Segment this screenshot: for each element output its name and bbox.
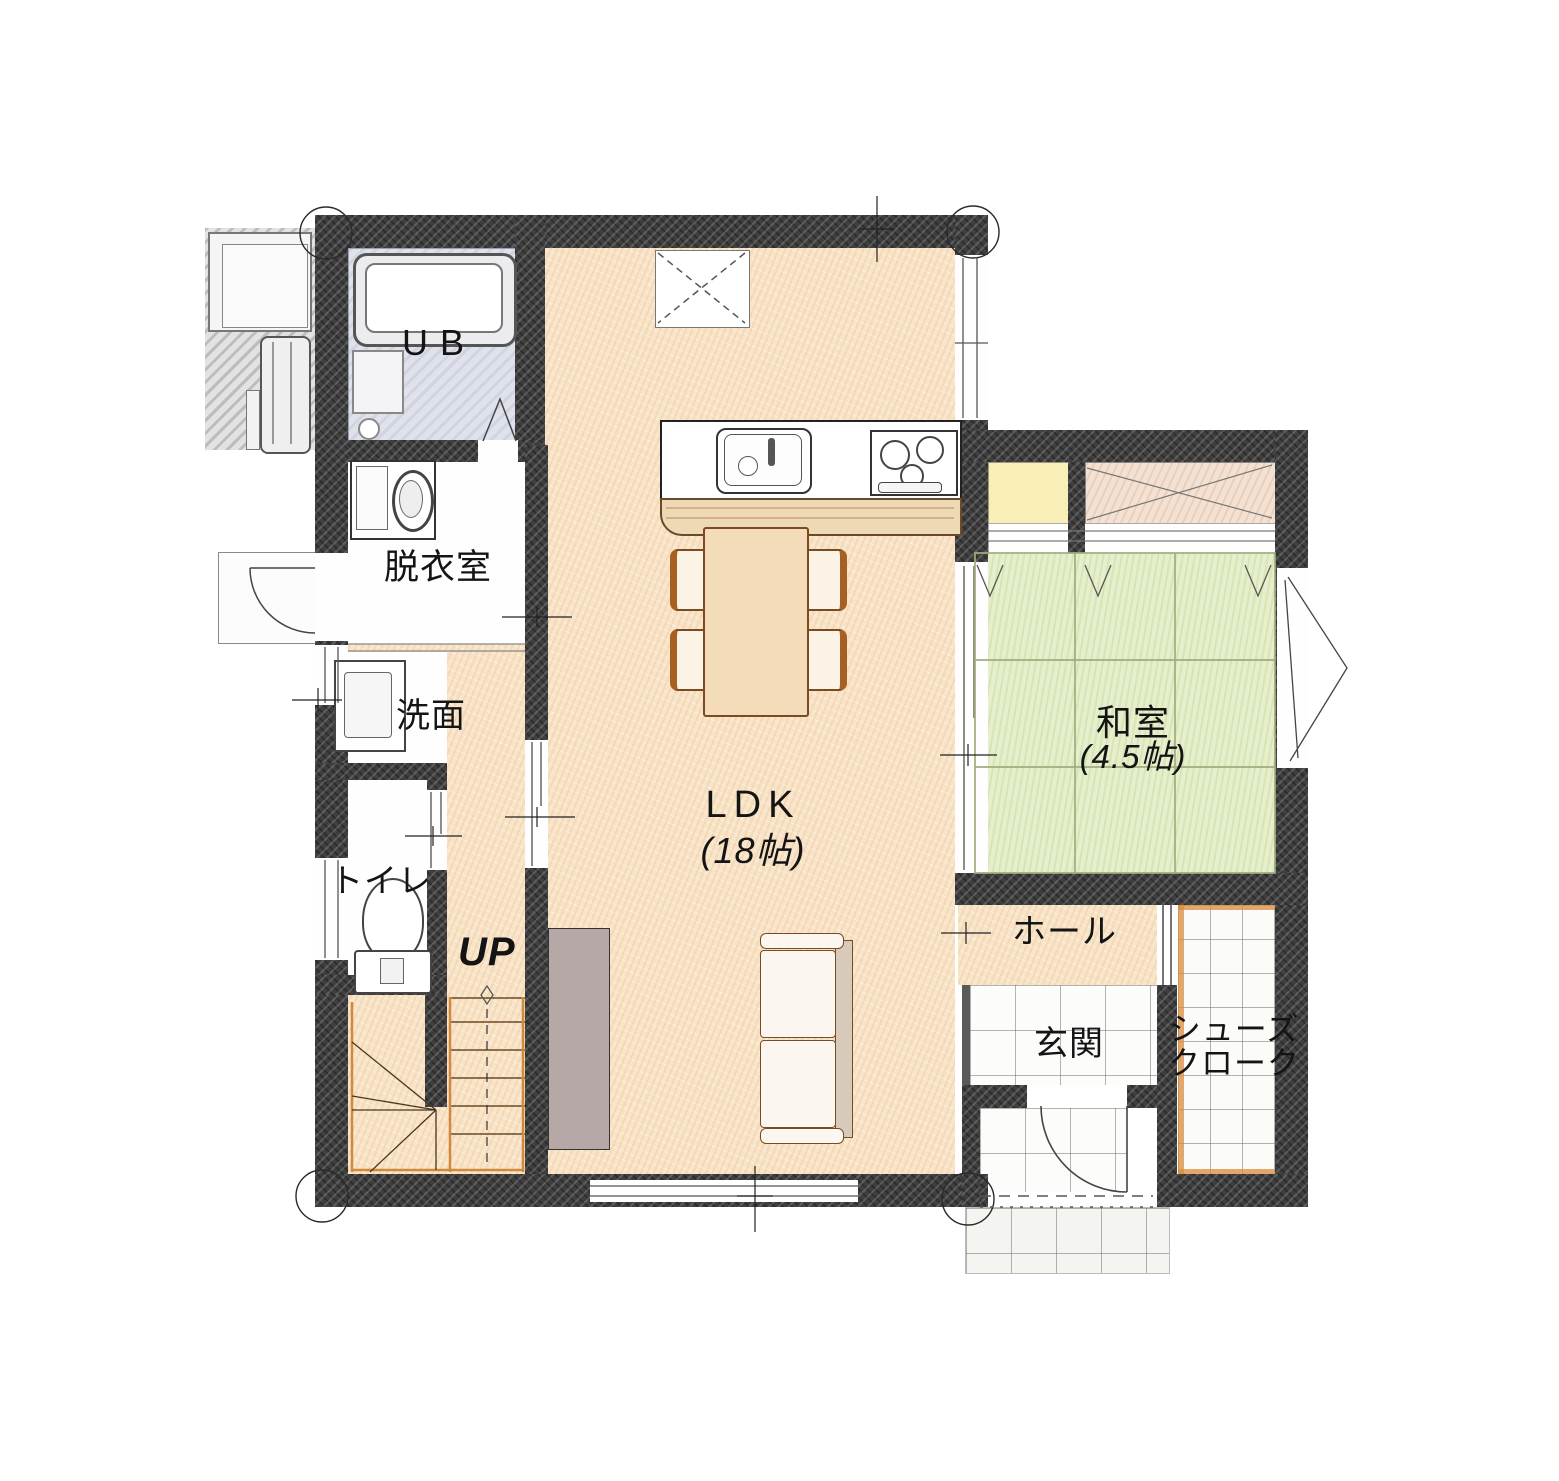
sofa-armrest [760,933,844,949]
washstand-bowl [344,672,392,738]
corridor-sliding-door [525,740,548,868]
wall-top-main [315,215,988,248]
room-label-washitsu-size: (4.5帖) [1058,730,1208,778]
washitsu-east-door-opening [1277,568,1308,768]
wall-wing-top [955,430,1308,462]
floor-plan-canvas: UB 脱衣室 洗面 トイレ UP LDK (18帖) 和室 (4.5帖) ホール… [0,0,1559,1481]
back-door-opening [315,553,348,641]
water-heater [260,336,311,454]
tokonoma-closet [988,462,1070,525]
room-label-ub: UB [402,322,476,364]
dining-table [703,527,809,717]
closet-sliding-track [988,523,1277,555]
porch-step-dashes [980,1196,1153,1207]
wall-closet-divider [1068,462,1085,553]
wall-vestibule-west [962,1085,980,1207]
wall-washroom-bottom [315,763,447,780]
chair [804,629,847,691]
water-heater-side-unit [246,390,260,450]
ldk-south-window [590,1180,858,1202]
room-label-toilet: トイレ [330,854,432,902]
shoe-closet-trim-top [1178,905,1275,910]
room-label-hall: ホール [1012,904,1117,953]
entrance-vestibule-tile [980,1108,1127,1192]
sink-faucet [768,438,775,466]
chair [804,549,847,611]
shower-drain [358,418,380,440]
sofa-cushion [760,950,836,1038]
washing-machine-lid [356,466,388,530]
wall-ldk-entrance-thin [962,985,970,1087]
ldk-east-window [955,255,988,420]
washing-machine-drum-inner [399,480,423,518]
washitsu-west-sliding-door [955,562,988,873]
room-label-shoecloset-2: クローク [1164,1038,1304,1084]
water-heater-line [272,342,274,444]
stove-grill [878,482,942,493]
room-label-up: UP [458,930,516,975]
room-label-washroom: 洗面 [396,688,466,737]
room-label-ldk-size: (18帖) [678,822,828,874]
wall-stair-spine [425,995,447,1107]
outdoor-equipment-box-inner [222,244,308,328]
refrigerator-space [655,250,750,328]
shower-counter [352,350,404,414]
tv-board [548,928,610,1150]
sofa-armrest [760,1128,844,1144]
room-label-ldk: LDK [690,784,816,827]
wall-wing-bottom [1157,1174,1308,1207]
wall-washitsu-south [955,873,1308,905]
wall-wing-right [1275,430,1308,1207]
wall-ub-right [515,215,545,448]
room-label-dressing: 脱衣室 [384,539,492,590]
room-label-genkan: 玄関 [1034,1016,1104,1065]
futon-closet [1085,462,1277,525]
sofa-back [835,940,853,1138]
porch-tiles [965,1207,1170,1274]
back-door-landing [218,552,317,644]
stove-burner [916,436,944,464]
water-heater-line [290,342,292,444]
kitchen-sink-inner [724,434,802,486]
ub-door-opening [478,440,518,462]
toilet-flush [380,958,404,984]
sofa-cushion [760,1040,836,1128]
hall-shoecloset-partition [1163,905,1171,985]
sink-drain [738,456,758,476]
